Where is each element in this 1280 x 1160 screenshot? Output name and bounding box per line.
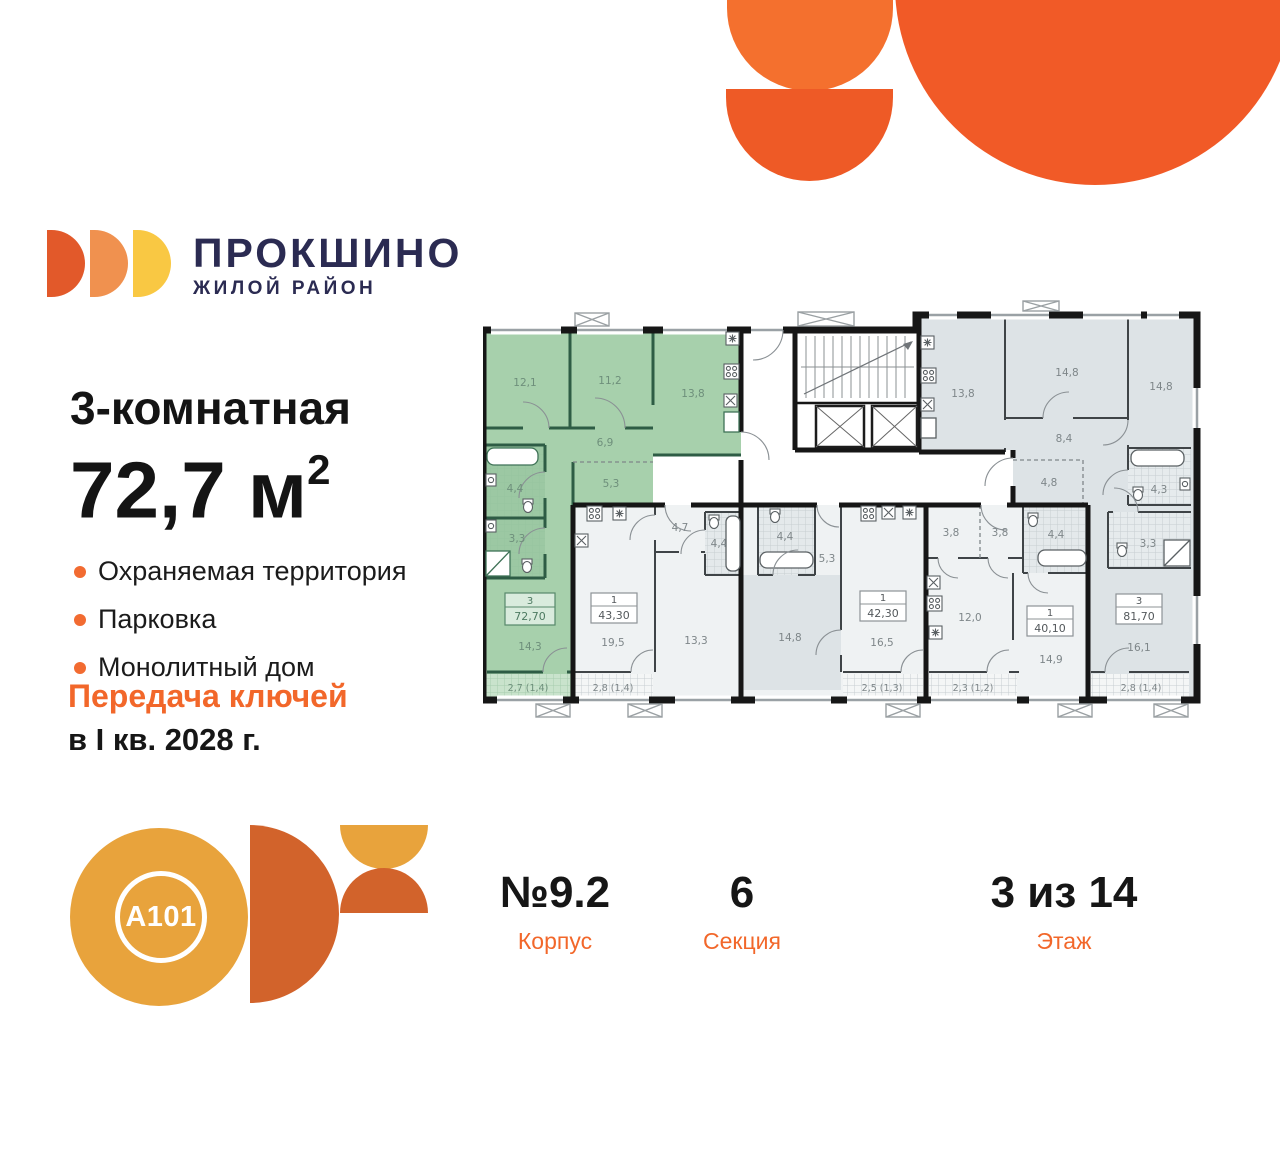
area-title: 72,7 м2 (70, 434, 351, 533)
a101-text: A101 (125, 901, 196, 934)
floor-value: 3 из 14 (964, 868, 1164, 918)
room-label: 14,3 (518, 641, 541, 653)
room-label: 12,0 (958, 612, 981, 624)
feature-label: Охраняемая территория (98, 556, 406, 587)
room-label: 19,5 (601, 637, 624, 649)
room-label: 5,3 (819, 553, 836, 565)
feature-item: Парковка (74, 604, 406, 635)
feature-item: Охраняемая территория (74, 556, 406, 587)
flyer-page: ПРОКШИНО ЖИЛОЙ РАЙОН 3-комнатная 72,7 м2… (0, 0, 1280, 1160)
room-label: 4,7 (672, 522, 689, 534)
room-label: 3,3 (1140, 538, 1157, 550)
feature-label: Парковка (98, 604, 216, 635)
bullet-icon (74, 662, 86, 674)
building-label: Корпус (455, 928, 655, 955)
room-label: 4,4 (777, 531, 794, 543)
room-label: 13,3 (684, 635, 707, 647)
balcony-label: 2,8 (1,4) (1121, 683, 1162, 694)
room-label: 4,4 (1048, 529, 1065, 541)
rooms-title: 3-комнатная (70, 384, 351, 432)
apartment-area: 72,70 (514, 610, 546, 623)
apartment-area: 81,70 (1123, 610, 1155, 623)
room-label: 11,2 (598, 375, 621, 387)
section-value: 6 (642, 868, 842, 918)
brand-tagline: ЖИЛОЙ РАЙОН (193, 278, 462, 300)
room-label: 14,8 (1055, 367, 1078, 379)
keys-handover-line1: Передача ключей (68, 678, 348, 715)
semicircle-icon (90, 230, 128, 297)
floor-plan-svg: 3 72,70 1 43,30 1 42,30 1 40,10 (483, 300, 1203, 720)
meta-building: №9.2 Корпус (455, 868, 655, 955)
semicircle-icon (47, 230, 85, 297)
bullet-icon (74, 614, 86, 626)
apartment-number: 1 (1047, 608, 1053, 619)
room-label: 12,1 (513, 377, 536, 389)
brand-name: ПРОКШИНО (193, 230, 462, 276)
keys-handover-line2: в I кв. 2028 г. (68, 722, 261, 758)
room-label: 14,8 (778, 632, 801, 644)
apartment-number: 3 (527, 596, 533, 607)
meta-section: 6 Секция (642, 868, 842, 955)
a101-halfdisk (250, 825, 339, 1003)
room-label: 14,9 (1039, 654, 1062, 666)
brand-text: ПРОКШИНО ЖИЛОЙ РАЙОН (193, 230, 462, 300)
building-value: №9.2 (455, 868, 655, 918)
decor-circle-large (895, 0, 1280, 185)
area-value: 72,7 м (70, 446, 307, 535)
apartment-box-42-30: 1 42,30 (860, 591, 906, 621)
apartment-box-81-70: 3 81,70 (1116, 594, 1162, 624)
developer-logo: A101 (70, 825, 430, 1010)
balcony-label: 2,7 (1,4) (508, 683, 549, 694)
apartment-number: 3 (1136, 596, 1142, 607)
apartment-number: 1 (611, 595, 617, 606)
room-label: 16,5 (870, 637, 893, 649)
brand-semicircles-icon (47, 230, 171, 297)
apartment-area: 42,30 (867, 607, 899, 620)
decor-semicircle-medium (726, 89, 893, 181)
room-label: 14,8 (1149, 381, 1172, 393)
apartment-box-72-70: 3 72,70 (505, 593, 555, 625)
bullet-icon (74, 566, 86, 578)
decor-semicircle-small (727, 0, 893, 91)
listing-headline: 3-комнатная 72,7 м2 (70, 384, 351, 533)
room-label: 3,3 (509, 533, 526, 545)
room-label: 3,8 (943, 527, 960, 539)
apartment-box-43-30: 1 43,30 (591, 593, 637, 623)
room-label: 4,3 (1151, 484, 1168, 496)
apartment-number: 1 (880, 593, 886, 604)
a101-eye-bottom (340, 868, 428, 913)
room-label: 4,4 (507, 483, 524, 495)
balcony-label: 2,5 (1,3) (862, 683, 903, 694)
room-label: 5,3 (603, 478, 620, 490)
room-label: 8,4 (1056, 433, 1073, 445)
room-label: 3,8 (992, 527, 1009, 539)
semicircle-icon (133, 230, 171, 297)
room-label: 16,1 (1127, 642, 1150, 654)
brand-logo: ПРОКШИНО ЖИЛОЙ РАЙОН (47, 230, 462, 300)
section-label: Секция (642, 928, 842, 955)
area-superscript: 2 (307, 446, 330, 493)
floor-plan: 3 72,70 1 43,30 1 42,30 1 40,10 (483, 300, 1203, 725)
a101-ring: A101 (115, 871, 207, 963)
room-label: 13,8 (951, 388, 974, 400)
room-label: 4,4 (711, 538, 728, 550)
meta-floor: 3 из 14 Этаж (964, 868, 1164, 955)
a101-eye-top (340, 825, 428, 869)
balcony-label: 2,8 (1,4) (593, 683, 634, 694)
balcony-label: 2,3 (1,2) (953, 683, 994, 694)
apartment-box-40-10: 1 40,10 (1027, 606, 1073, 636)
room-label: 6,9 (597, 437, 614, 449)
room-label: 4,8 (1041, 477, 1058, 489)
apartment-area: 40,10 (1034, 622, 1066, 635)
apartment-area: 43,30 (598, 609, 630, 622)
room-label: 13,8 (681, 388, 704, 400)
floor-label: Этаж (964, 928, 1164, 955)
